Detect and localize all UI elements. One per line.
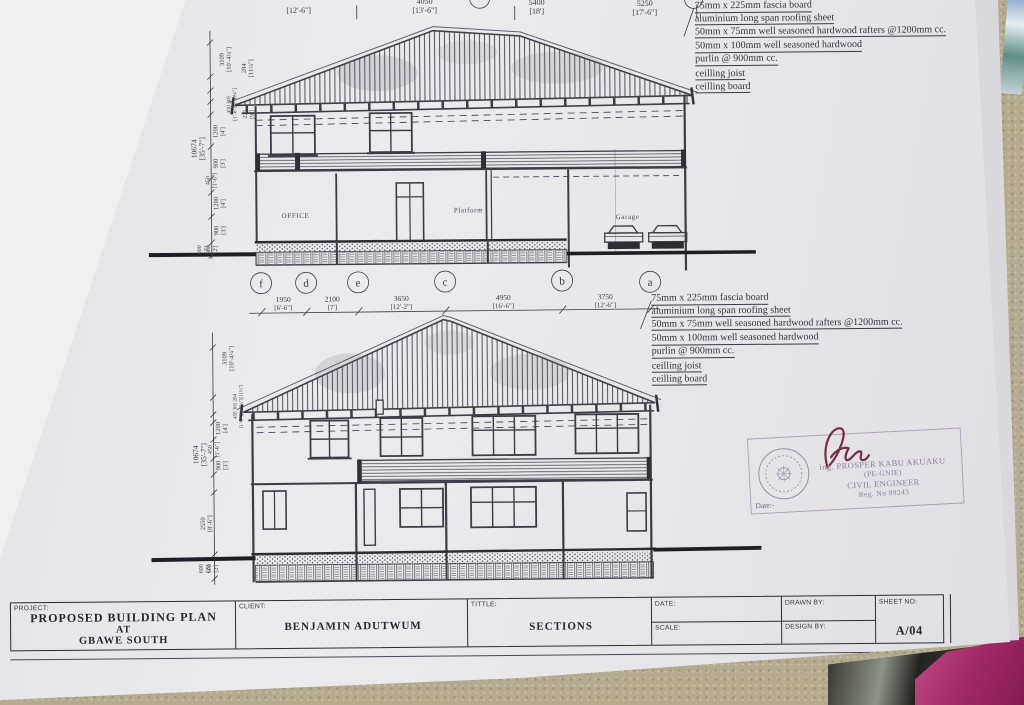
sheet-no-value: A/04 — [877, 623, 941, 639]
svg-text:[7']: [7'] — [328, 304, 338, 312]
date-label: DATE: — [655, 601, 676, 608]
svg-text:3750: 3750 — [598, 292, 613, 301]
dim-label: 2550[8'-6"] — [200, 515, 215, 532]
dim-label: 600[2'] — [207, 564, 221, 573]
ground-windows-bottom — [263, 486, 646, 546]
car-icons — [605, 225, 687, 249]
photo-scene: [12'-6"] 4050 [13'-6"] 5400 [18'] 5250 [… — [0, 0, 1024, 705]
engineer-stamp: ing. PROSPER KABU AKUAKU (PE-GNIE) CIVIL… — [747, 427, 965, 514]
grid-bubbles-top-cut — [470, 0, 703, 10]
svg-text:e: e — [356, 277, 361, 289]
dim-label: 450 305[1'-6"][1'-0¼"] — [226, 88, 239, 121]
svg-text:[12'-2"]: [12'-2"] — [390, 303, 412, 311]
room-label-office: OFFICE — [282, 212, 310, 220]
title-block-outer-right-line — [950, 594, 952, 643]
floor-slab-top — [254, 149, 687, 171]
roof-top-drawing — [228, 24, 698, 126]
svg-text:[6'-6"]: [6'-6"] — [274, 304, 292, 312]
dim-label: 450[1'-6"] — [208, 442, 222, 458]
sheet-border-bottom-line — [10, 651, 1010, 661]
design-by-label: DESIGN BY: — [785, 623, 826, 630]
paper-sheet: [12'-6"] 4050 [13'-6"] 5400 [18'] 5250 [… — [0, 0, 1024, 705]
upper-windows-top — [268, 113, 415, 156]
stamp-text: ing. PROSPER KABU AKUAKU (PE-GNIE) CIVIL… — [807, 455, 959, 503]
dim-label: 450[1'-6"] — [205, 173, 219, 189]
scale-label: SCALE: — [655, 625, 680, 632]
svg-text:3650: 3650 — [394, 294, 409, 303]
dim-label: 225[9"] — [243, 109, 257, 119]
dim-row-top: [12'-6"] 4050 [13'-6"] 5400 [18'] 5250 [… — [286, 0, 697, 22]
roof-notes-top: 75mm x 225mm fascia board aluminium long… — [695, 0, 947, 94]
client-value: BENJAMIN ADUTWUM — [243, 619, 463, 633]
dim-row-mid: 1950 [6'-6"] 2100 [7'] 3650 [12'-2"] 495… — [249, 292, 659, 317]
svg-text:[12'-6"]: [12'-6"] — [286, 6, 311, 15]
platform-door — [396, 183, 424, 241]
client-label: CLIENT: — [239, 603, 266, 610]
svg-text:4950: 4950 — [496, 293, 511, 302]
dim-label: 284[11¼"] — [241, 59, 256, 77]
svg-text:[17'-6"]: [17'-6"] — [632, 8, 657, 17]
drawn-by-label: DRAWN BY: — [785, 599, 825, 606]
upper-windows-bottom — [307, 414, 638, 459]
svg-text:b: b — [559, 276, 565, 288]
dim-chain-left-top — [207, 31, 215, 259]
svg-text:2100: 2100 — [325, 294, 340, 303]
project-value-line3: GBAWE SOUTH — [21, 635, 226, 648]
dim-label: 3109[10'-4¼"] — [219, 47, 234, 72]
roof-notes-bottom: 75mm x 225mm fascia board aluminium long… — [651, 291, 903, 387]
svg-text:[13'-6"]: [13'-6"] — [412, 6, 437, 15]
dim-label: 1200[4'] — [215, 422, 230, 435]
svg-text:1950: 1950 — [276, 295, 291, 304]
svg-text:[18']: [18'] — [529, 7, 544, 16]
stamp-date-label: Date:- — [755, 500, 774, 510]
dim-label: 900[3'] — [213, 226, 228, 236]
louver-band-bottom — [251, 457, 653, 485]
dim-label: 900[3'] — [213, 159, 228, 169]
drawing-content: [12'-6"] 4050 [13'-6"] 5400 [18'] 5250 [… — [0, 0, 1024, 705]
title-value: SECTIONS — [475, 620, 647, 634]
svg-text:5250: 5250 — [637, 0, 653, 8]
dim-label: 10674[35'-7"] — [192, 443, 209, 466]
dim-label: 450 305 284[1'-6"][1'-0¼"][11¼"] — [233, 385, 245, 429]
title-block: PROJECT: PROPOSED BUILDING PLAN AT GBAWE… — [10, 594, 944, 651]
svg-text:d: d — [303, 278, 309, 290]
dim-label: 900[3'] — [215, 461, 230, 471]
dim-chain-left-bottom — [210, 333, 218, 585]
sheet-no-label: SHEET NO: — [879, 598, 917, 605]
dim-label: 10674[35'-7"] — [190, 137, 207, 160]
book-edge — [1000, 0, 1024, 95]
svg-text:[12'-6"]: [12'-6"] — [594, 301, 616, 309]
svg-text:c: c — [443, 277, 448, 289]
note-leader-top — [684, 8, 694, 36]
section-drawing-top: [12'-6"] 4050 [13'-6"] 5400 [18'] 5250 [… — [142, 0, 770, 318]
svg-text:[16'-6"]: [16'-6"] — [492, 302, 514, 310]
foundation-bottom — [151, 548, 761, 583]
room-label-garage: Garage — [616, 213, 640, 221]
svg-text:f: f — [259, 278, 263, 290]
dim-label: 1200[4'] — [213, 197, 228, 210]
room-label-platform: Platform — [454, 206, 483, 214]
dim-label: 1200[4'] — [212, 125, 227, 138]
dim-label: 3109[10'-4¼"] — [221, 346, 236, 371]
dim-label: 600[2'] — [206, 245, 220, 254]
svg-text:a: a — [648, 277, 653, 289]
title-label: TITTLE: — [471, 601, 497, 608]
